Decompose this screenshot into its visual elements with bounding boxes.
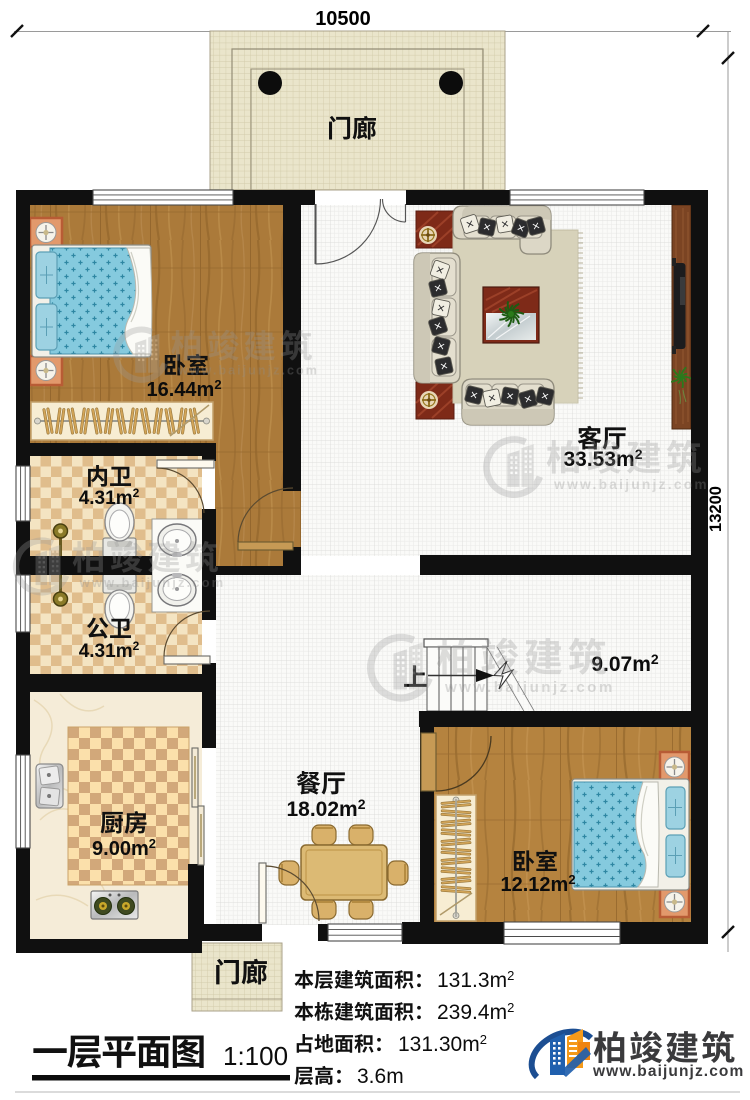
svg-text:239.4m2: 239.4m2 bbox=[437, 1000, 514, 1024]
svg-text:www.baijunjz.com: www.baijunjz.com bbox=[553, 477, 709, 492]
svg-text:10500: 10500 bbox=[315, 8, 371, 30]
svg-text:www.baijunjz.com: www.baijunjz.com bbox=[592, 1063, 744, 1080]
svg-text:9.00m2: 9.00m2 bbox=[92, 836, 156, 860]
svg-text:3.6m: 3.6m bbox=[357, 1065, 404, 1088]
svg-text:16.44m2: 16.44m2 bbox=[146, 377, 221, 401]
svg-text:4.31m2: 4.31m2 bbox=[79, 639, 140, 662]
svg-text:131.3m2: 131.3m2 bbox=[437, 968, 514, 992]
svg-text:18.02m2: 18.02m2 bbox=[286, 796, 365, 821]
svg-text:www.baijunjz.com: www.baijunjz.com bbox=[79, 575, 226, 590]
svg-text:www.baijunjz.com: www.baijunjz.com bbox=[177, 364, 319, 378]
svg-text:1:100: 1:100 bbox=[223, 1041, 288, 1071]
svg-text:12.12m2: 12.12m2 bbox=[500, 872, 575, 896]
svg-text:www.baijunjz.com: www.baijunjz.com bbox=[444, 679, 615, 696]
svg-text:13200: 13200 bbox=[707, 486, 725, 532]
svg-text:131.30m2: 131.30m2 bbox=[398, 1032, 487, 1056]
svg-text:4.31m2: 4.31m2 bbox=[79, 486, 140, 509]
